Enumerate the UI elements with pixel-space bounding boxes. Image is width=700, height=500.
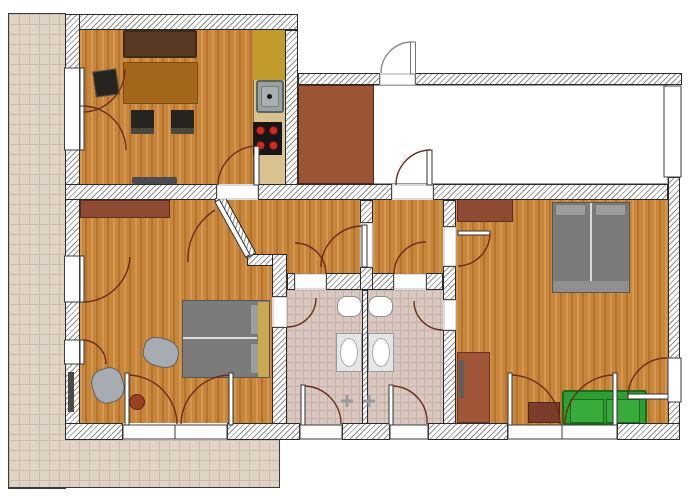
- entrance-door-swing: [381, 42, 412, 73]
- door-gap-kitchen: [217, 185, 258, 199]
- balcony-door-kitchen: [65, 68, 80, 150]
- entrance-gap: [380, 74, 415, 85]
- door-gap-hall-anteroom2: [392, 185, 433, 199]
- window-bath1: [300, 425, 342, 439]
- balcony-door-bedroom1: [65, 256, 80, 302]
- door-gap-bath2-bedroom2: [444, 300, 456, 330]
- door-gaps: [217, 185, 456, 330]
- doors-windows-overlay: [0, 0, 700, 500]
- window-bath2: [390, 425, 428, 439]
- floor-drains: [341, 395, 375, 407]
- hallway-end-door: [664, 86, 681, 177]
- floor-plan: Balkon Küche - Wohnen Gang Vorzimmer Vor…: [0, 0, 700, 500]
- entrance-door-leaf: [411, 42, 416, 74]
- door-gap-anteroom2-bedroom2: [444, 227, 456, 266]
- door-gap-bath1-bedroom1: [273, 297, 287, 327]
- door-leaves: [80, 42, 668, 425]
- door-gap-bath1: [295, 274, 326, 289]
- door-swings: [84, 69, 667, 424]
- window-bedroom2-right: [668, 358, 681, 402]
- diagonal-door-leaf: [215, 200, 250, 258]
- door-gap-bath2: [394, 274, 426, 289]
- radiator: [68, 372, 74, 412]
- window-bedroom1-left: [65, 340, 80, 364]
